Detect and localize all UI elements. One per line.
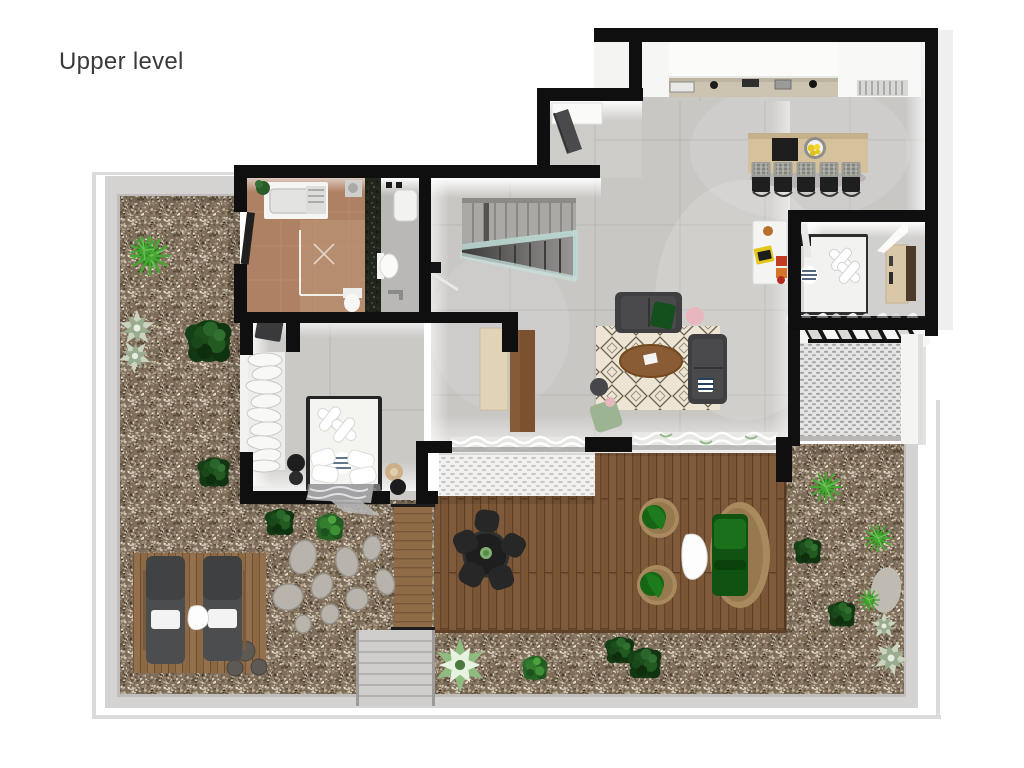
- svg-text:Upper level: Upper level: [59, 48, 184, 75]
